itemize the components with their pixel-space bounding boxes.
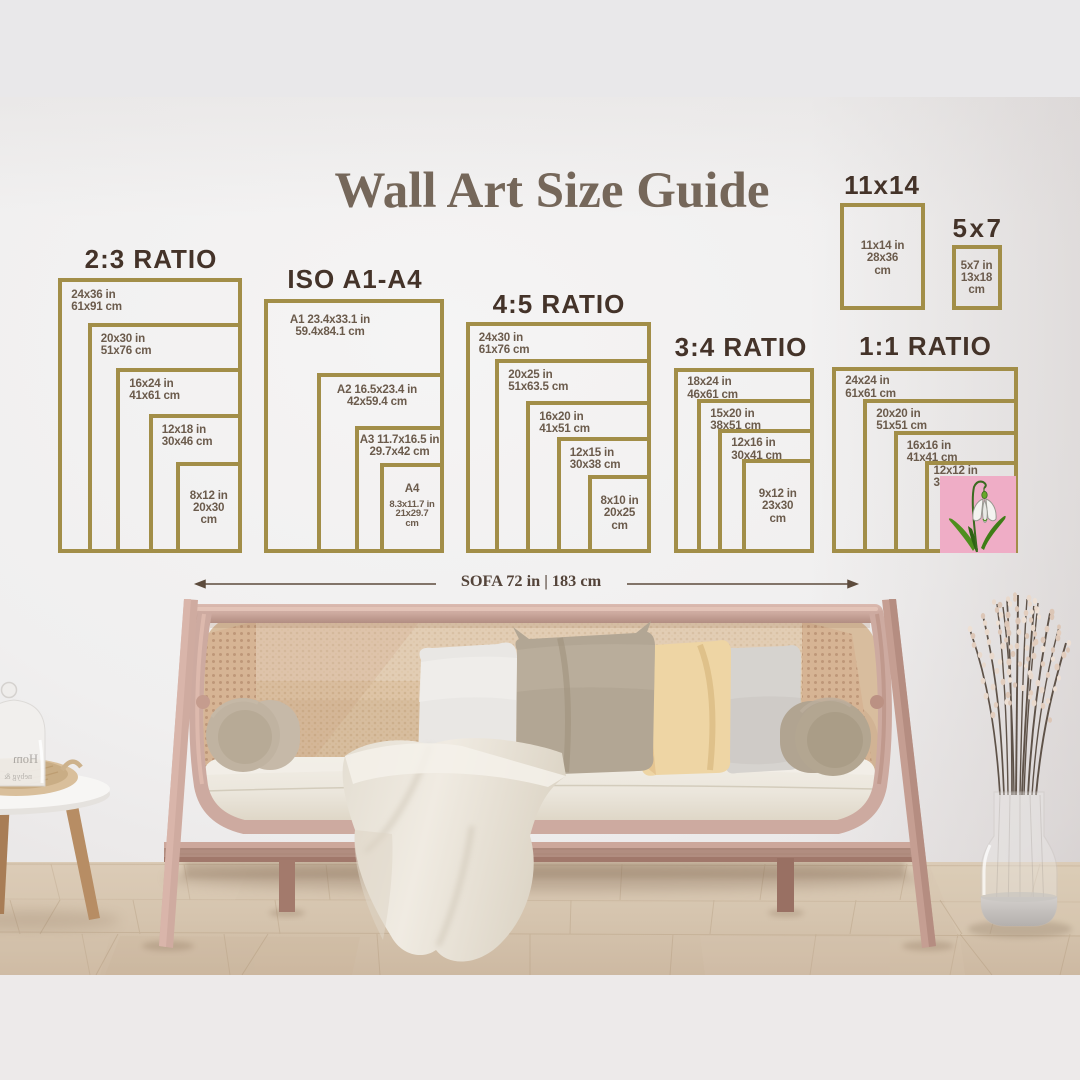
- svg-text:Hom: Hom: [13, 752, 38, 766]
- svg-text:nebyg &: nebyg &: [3, 772, 32, 781]
